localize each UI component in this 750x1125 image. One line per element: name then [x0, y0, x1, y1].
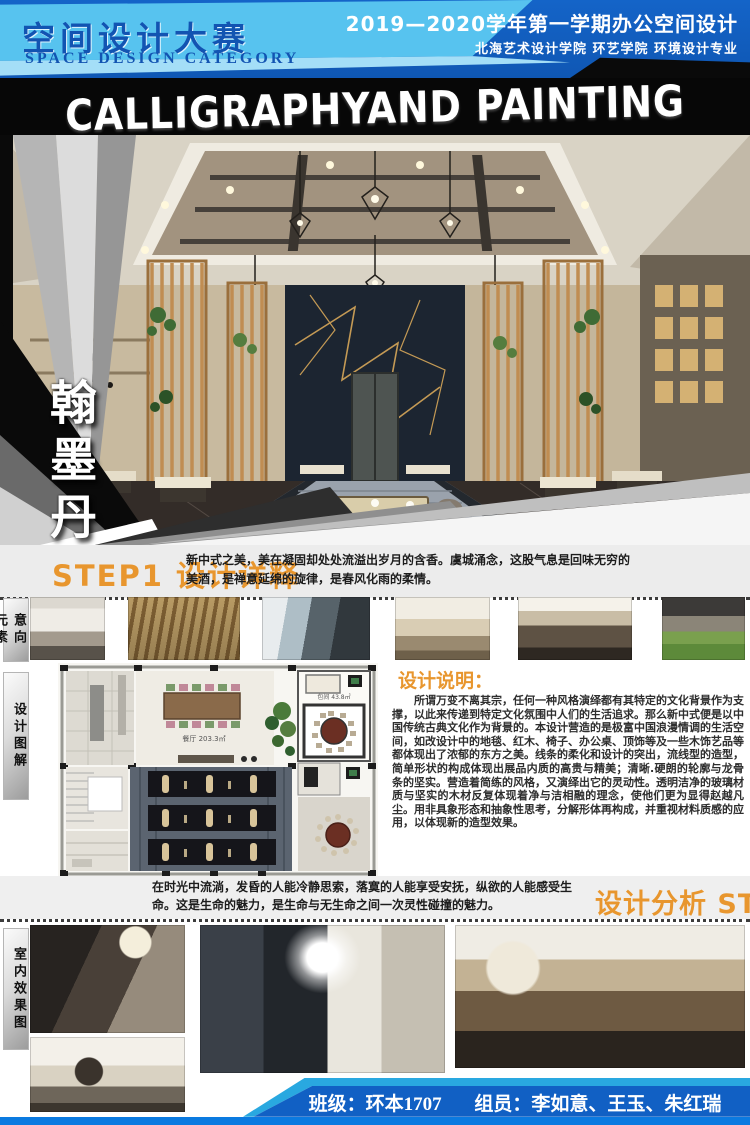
rendering-dining-area	[455, 925, 745, 1068]
competition-subtitle: SPACE DESIGN CATEGORY	[25, 50, 299, 68]
design-diagram-label: 设计图解	[3, 672, 29, 800]
class-label: 班级：环本1707	[309, 1094, 442, 1115]
rendering-tea-hall	[200, 925, 445, 1073]
footer-bottom-strip	[0, 1117, 750, 1125]
floor-plan-kitchen	[66, 671, 134, 765]
step2-intro: 在时光中流淌，发昏的人能冷静思索，落寞的人能享受安抚，纵欲的人能感受生命。这是生…	[152, 878, 592, 914]
private-room-label: 包间 43.8㎡	[317, 693, 350, 701]
intent-photo-corridor	[30, 597, 105, 660]
intent-photo-wood-slats	[128, 597, 240, 660]
dotted-divider-bottom	[0, 919, 750, 922]
intent-photo-lounge	[395, 597, 490, 660]
header: 空间设计大赛 SPACE DESIGN CATEGORY 2019—2020学年…	[0, 0, 750, 78]
dining-area-label: 餐厅 203.3㎡	[182, 734, 225, 743]
step1-intro: 新中式之美，美在凝固却处处流溢出岁月的含香。虞城涌念，这股气息是回味无穷的美酒，…	[186, 551, 636, 588]
intent-photo-study	[518, 597, 632, 660]
design-note-body: 所谓万变不离其宗，任何一种风格演绎都有其特定的文化背景作为支撑，以此来传递到特定…	[392, 694, 744, 830]
floor-plan: 餐厅 203.3㎡ 包间 43.8㎡	[58, 663, 378, 878]
floor-plan-dining-hall: 餐厅 203.3㎡	[136, 671, 274, 765]
dotted-divider-top	[0, 597, 750, 600]
rendering-round-table-room	[30, 1037, 185, 1112]
footer-credits: 班级：环本1707 组员：李如意、王玉、朱红瑞	[280, 1089, 750, 1116]
interior-renderings-label: 室内效果图	[3, 928, 29, 1050]
design-note-heading: 设计说明：	[398, 666, 493, 693]
intent-photo-green-office	[662, 597, 745, 660]
members-label: 组员：李如意、王玉、朱红瑞	[474, 1094, 721, 1115]
step2-heading: 设计分析 STEP2	[595, 882, 750, 921]
floor-plan-dark-dining	[130, 767, 292, 871]
floor-plan-round-dining	[298, 797, 370, 871]
rendering-private-dining	[30, 925, 185, 1033]
hero-section: 翰墨丹青	[0, 135, 750, 545]
hero-rendering	[0, 135, 750, 545]
hero-feature-wall	[285, 285, 465, 481]
school-line: 北海艺术设计学院 环艺学院 环境设计专业	[475, 38, 738, 57]
floor-plan-stairs	[66, 767, 128, 871]
intent-photo-office-window	[262, 597, 370, 660]
floor-plan-private-room: 包间 43.8㎡	[298, 671, 370, 761]
poster: 空间设计大赛 SPACE DESIGN CATEGORY 2019—2020学年…	[0, 0, 750, 1125]
intent-elements-label: 意向元素	[3, 598, 29, 662]
term-line: 2019—2020学年第一学期办公空间设计	[346, 8, 738, 37]
